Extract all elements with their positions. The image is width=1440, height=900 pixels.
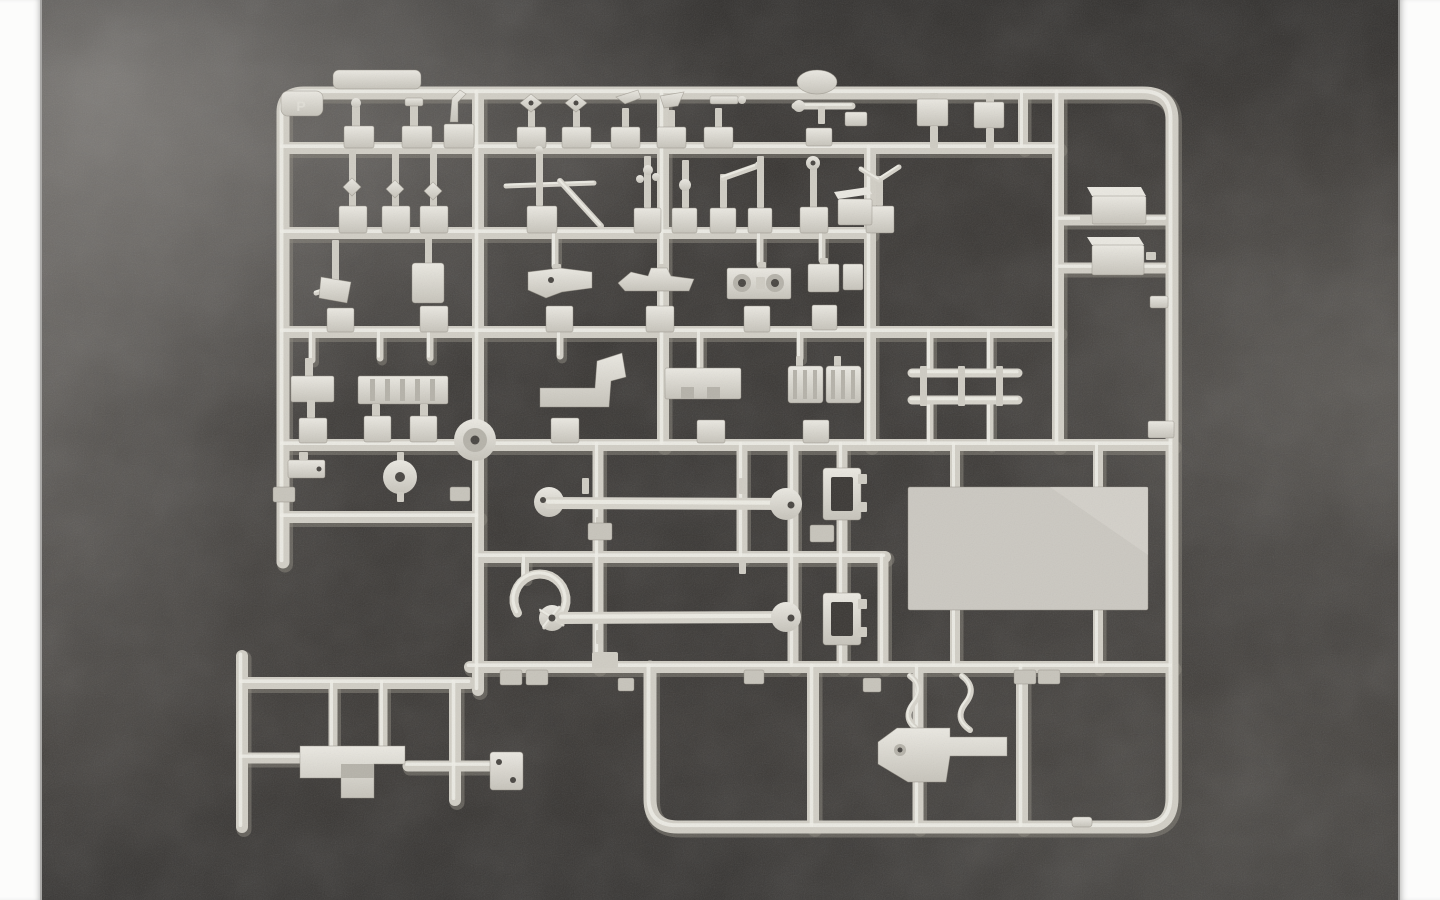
sprue-render: P	[0, 0, 1440, 900]
matte-left-bar	[0, 0, 42, 900]
photo-stage: P	[0, 0, 1440, 900]
photo-grain	[40, 0, 1398, 900]
matte-right-bar	[1398, 0, 1440, 900]
